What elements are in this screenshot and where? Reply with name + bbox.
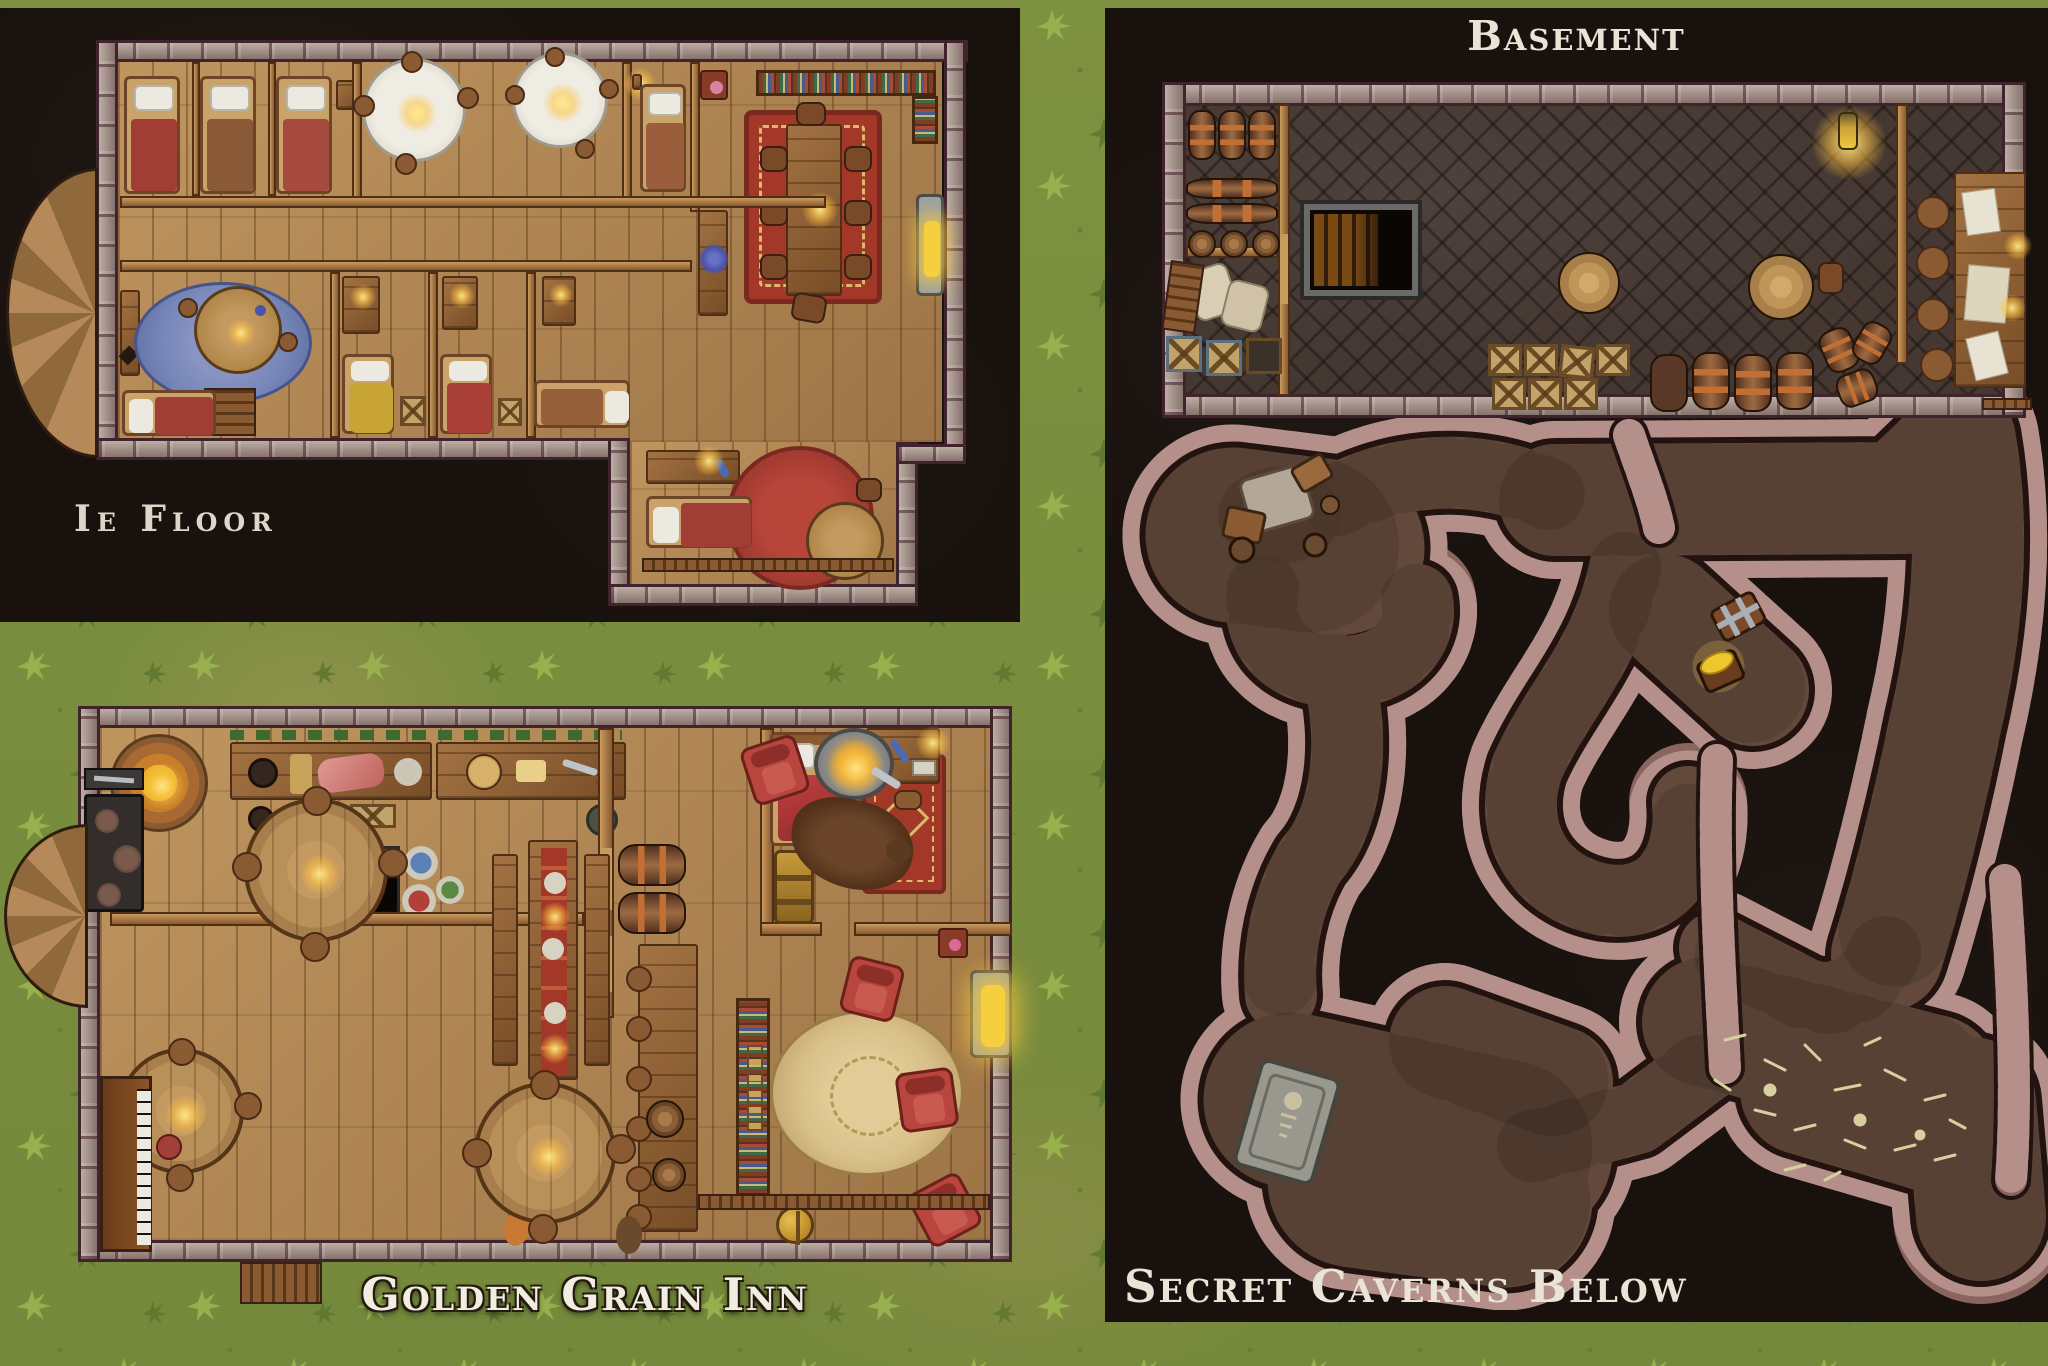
book	[912, 760, 936, 776]
ue-bed-brown	[534, 380, 630, 428]
plate	[544, 872, 566, 894]
stool	[232, 852, 262, 882]
bs-keg-top	[1188, 230, 1216, 258]
stool	[300, 932, 330, 962]
pillow	[210, 85, 250, 111]
caverns-title: Secret Caverns Below	[1124, 1260, 1688, 1313]
door	[1280, 234, 1288, 304]
bs-crate-stack	[1488, 344, 1632, 410]
ue-wall-east	[944, 40, 966, 464]
ue-bookshelf-corner	[912, 96, 938, 144]
ue-side-table	[442, 276, 478, 330]
candle-glow	[2004, 232, 2032, 260]
blanket	[447, 383, 491, 433]
ue-chair	[790, 291, 828, 324]
chair-seat	[853, 982, 888, 1014]
barrel	[1650, 354, 1688, 412]
blue-flower	[255, 305, 266, 316]
inn-bench	[492, 854, 518, 1066]
barrel-side	[1186, 178, 1278, 199]
burner	[113, 845, 141, 873]
plate	[394, 758, 422, 786]
pillow	[648, 92, 682, 116]
inn-knife-rack	[84, 768, 144, 790]
ue-wall-se-south	[608, 584, 918, 606]
ue-corridor-rail-lower	[120, 260, 692, 272]
bs-keg-top	[1220, 230, 1248, 258]
ue-bench	[698, 210, 728, 316]
pillow	[605, 391, 629, 423]
barrel-side	[1186, 203, 1278, 224]
stool	[575, 139, 595, 159]
hatch-fade	[1354, 212, 1412, 288]
ue-chair	[796, 102, 826, 126]
knife	[562, 759, 598, 777]
stool	[462, 1138, 492, 1168]
dartboard-circle	[710, 81, 723, 94]
flower-pot	[700, 242, 728, 276]
inn-globe	[776, 1206, 814, 1244]
ue-se-desk	[646, 450, 740, 484]
crate	[1528, 378, 1562, 410]
knife	[94, 776, 134, 784]
bs-map-desk	[1954, 172, 2026, 388]
ue-divider-2	[268, 62, 276, 196]
inn-plate-greens	[436, 876, 464, 904]
blanket	[646, 123, 684, 189]
blanket	[349, 383, 393, 433]
stool	[599, 79, 619, 99]
ue-fireplace	[916, 194, 944, 296]
ue-balcony-railing	[642, 558, 894, 572]
barrel-side	[618, 892, 686, 934]
ue-se-sconce-glow	[694, 446, 724, 476]
ue-wall-se-east	[896, 442, 918, 606]
ue-bed-red	[440, 354, 492, 434]
stool	[166, 1164, 194, 1192]
inn-counter-1	[230, 742, 432, 800]
barrel	[1776, 352, 1814, 410]
ue-crate	[400, 396, 426, 426]
stool	[606, 1134, 636, 1164]
inn-brazier	[814, 728, 894, 800]
inn-wall-north	[78, 706, 1012, 728]
scroll	[1965, 331, 2009, 382]
bs-chair-barrel	[1916, 298, 1950, 332]
bs-chair	[1818, 262, 1844, 294]
inn-barrel-pair	[618, 844, 686, 936]
potato-bowl	[466, 754, 502, 790]
stool	[302, 786, 332, 816]
ue-bed-yellow	[342, 354, 394, 434]
inn-plate-fish	[404, 846, 438, 880]
inn-fireplace	[970, 970, 1012, 1058]
ue-dartboard	[700, 70, 728, 100]
inn-round-table-c	[474, 1082, 616, 1224]
bs-wall-north	[1162, 82, 2026, 106]
inn-bedroom-wall-south-a	[760, 922, 822, 936]
crate	[1492, 378, 1526, 410]
stool	[401, 51, 423, 73]
bs-chair-barrel	[1916, 246, 1950, 280]
ue-round-table-2	[512, 52, 608, 148]
ladder	[747, 1045, 763, 1131]
candle-glow	[397, 93, 437, 133]
pillow	[129, 399, 153, 433]
pillow	[286, 85, 326, 111]
ham	[316, 752, 386, 795]
stool	[395, 153, 417, 175]
blanket	[131, 119, 177, 191]
bs-lantern	[1838, 112, 1858, 150]
inn-bedroom-wall-south-b	[854, 922, 1012, 936]
chair-seat	[912, 1093, 946, 1125]
candle-glow	[165, 1095, 205, 1135]
ue-dining-table	[786, 124, 842, 296]
ue-wall-se-jog	[896, 444, 966, 464]
candle-glow	[540, 1034, 570, 1064]
pillow	[653, 507, 679, 543]
band	[777, 899, 811, 905]
meridian	[796, 1211, 800, 1245]
barrel	[1692, 352, 1730, 410]
lamp-glow	[350, 284, 376, 310]
ue-chair	[760, 146, 788, 172]
stool	[530, 1070, 560, 1100]
inn-garland	[230, 730, 622, 740]
basement-title: Basement	[1105, 12, 2048, 60]
ue-chair	[844, 254, 872, 280]
inn-barrel-top	[652, 1158, 686, 1192]
stool	[353, 95, 375, 117]
ue-divider-1	[192, 62, 200, 196]
inn-dog	[616, 1216, 642, 1254]
bs-barrel-row	[1650, 352, 1818, 414]
stool	[505, 85, 525, 105]
bs-barrel-upright	[1248, 110, 1276, 160]
stool	[545, 47, 565, 67]
stool	[626, 1066, 652, 1092]
stool	[168, 1038, 196, 1066]
paper	[1961, 188, 2001, 236]
bs-stair-hatch	[1300, 200, 1422, 300]
candle-glow	[529, 1137, 569, 1177]
ue-bed-2	[200, 76, 256, 194]
stool	[528, 1214, 558, 1244]
ground-floor-title: Golden Grain Inn	[300, 1268, 870, 1321]
inn-wall-lamp-glow	[916, 726, 950, 760]
bs-stump-table	[1748, 254, 1814, 320]
barrel	[1734, 354, 1772, 412]
stool	[626, 966, 652, 992]
blanket	[541, 389, 603, 425]
inn-bookshelf	[736, 998, 770, 1196]
burner	[95, 809, 119, 833]
crate	[1524, 344, 1558, 376]
crate	[1564, 378, 1598, 410]
bs-barrel-upright	[1188, 110, 1216, 160]
ue-bed-4	[640, 84, 686, 192]
bs-barrel-upright	[1218, 110, 1246, 160]
ue-wall-west	[96, 40, 118, 460]
bs-chair-barrel	[1916, 196, 1950, 230]
bs-crate-metal	[1206, 340, 1242, 376]
bs-keg-top	[1252, 230, 1280, 258]
inn-bench	[584, 854, 610, 1066]
inn-piano-stool	[156, 1134, 182, 1160]
ue-round-table-blue-room	[194, 286, 282, 374]
candle-glow	[300, 854, 340, 894]
ue-crate	[498, 398, 522, 426]
ue-stool	[178, 298, 198, 318]
ue-stool	[278, 332, 298, 352]
bs-crate	[1246, 338, 1282, 374]
inn-stool	[894, 790, 922, 810]
hide-head	[884, 837, 914, 864]
inn-round-table-a	[244, 798, 388, 942]
ue-chair	[844, 200, 872, 226]
blanket	[283, 119, 329, 191]
bs-crate-metal	[1166, 336, 1202, 372]
ue-bookshelf-top	[756, 70, 936, 96]
candle-glow	[1998, 294, 2026, 322]
potion	[949, 939, 961, 951]
ue-se-bed	[646, 496, 752, 548]
ue-wall-south-left	[96, 438, 630, 460]
ue-chair	[760, 254, 788, 280]
ue-partition-b2	[428, 272, 438, 438]
lamp-glow	[139, 763, 185, 809]
bs-broken-kegs	[1822, 322, 1898, 408]
crate	[1558, 344, 1595, 379]
fire-ember	[924, 221, 940, 277]
burner	[97, 883, 121, 907]
lamp-glow	[549, 283, 573, 307]
ue-chair	[844, 146, 872, 172]
bs-ladder	[1982, 398, 2032, 410]
inn-porch-railing	[698, 1194, 990, 1210]
ue-side-table	[342, 276, 380, 334]
stool	[378, 848, 408, 878]
lamp-glow	[449, 283, 475, 309]
stool	[626, 1166, 652, 1192]
ue-partition-b1	[330, 272, 340, 438]
fire-ember	[981, 985, 1005, 1047]
band	[777, 875, 811, 881]
cook-pot	[248, 758, 278, 788]
stool	[234, 1092, 262, 1120]
ue-bed-blue-room	[122, 390, 216, 436]
piano-keys	[137, 1089, 151, 1245]
plate	[542, 938, 564, 960]
bs-chair-barrel	[1920, 348, 1954, 382]
chair-back	[904, 1074, 946, 1095]
pillow	[351, 361, 389, 381]
battle-map-stage: Ie Floor Basement Golden Grain Inn Secre…	[0, 0, 2048, 1366]
stool	[626, 1016, 652, 1042]
candle-glow	[227, 319, 255, 347]
crate	[1596, 344, 1630, 376]
plate	[544, 1002, 566, 1024]
cavern-map	[1105, 300, 2048, 1310]
inn-stove	[84, 794, 144, 912]
ue-corridor-rail-upper	[120, 196, 826, 208]
inn-piano	[100, 1076, 152, 1252]
inn-long-table	[528, 840, 578, 1080]
blanket	[155, 397, 213, 435]
bs-barrel-rack	[1186, 178, 1278, 224]
cheese	[516, 760, 546, 782]
pillow	[449, 361, 487, 381]
bs-beam-right	[1896, 104, 1908, 364]
stool	[457, 87, 479, 109]
blanket	[681, 503, 751, 547]
inn-barrel-top	[646, 1100, 684, 1138]
ue-wall-north	[96, 40, 968, 62]
inn-armchair	[894, 1066, 960, 1133]
candle-glow	[543, 83, 583, 123]
blanket	[207, 119, 253, 191]
chair-seat	[760, 760, 797, 796]
ue-partition-5	[690, 62, 700, 212]
ue-side-table	[542, 276, 576, 326]
ue-wall-se-west	[608, 438, 630, 606]
ue-bed-1	[124, 76, 180, 194]
ue-round-table-1	[362, 58, 466, 162]
barrel-side	[618, 844, 686, 886]
ue-se-chair	[856, 478, 882, 502]
ue-bed-3	[276, 76, 332, 194]
upper-floor-title: Ie Floor	[74, 498, 278, 540]
ue-partition-3	[352, 62, 362, 200]
candle-glow	[540, 902, 570, 932]
crate	[1488, 344, 1522, 376]
bs-stump-table	[1558, 252, 1620, 314]
inn-side-table	[938, 928, 968, 958]
pillow	[134, 85, 174, 111]
